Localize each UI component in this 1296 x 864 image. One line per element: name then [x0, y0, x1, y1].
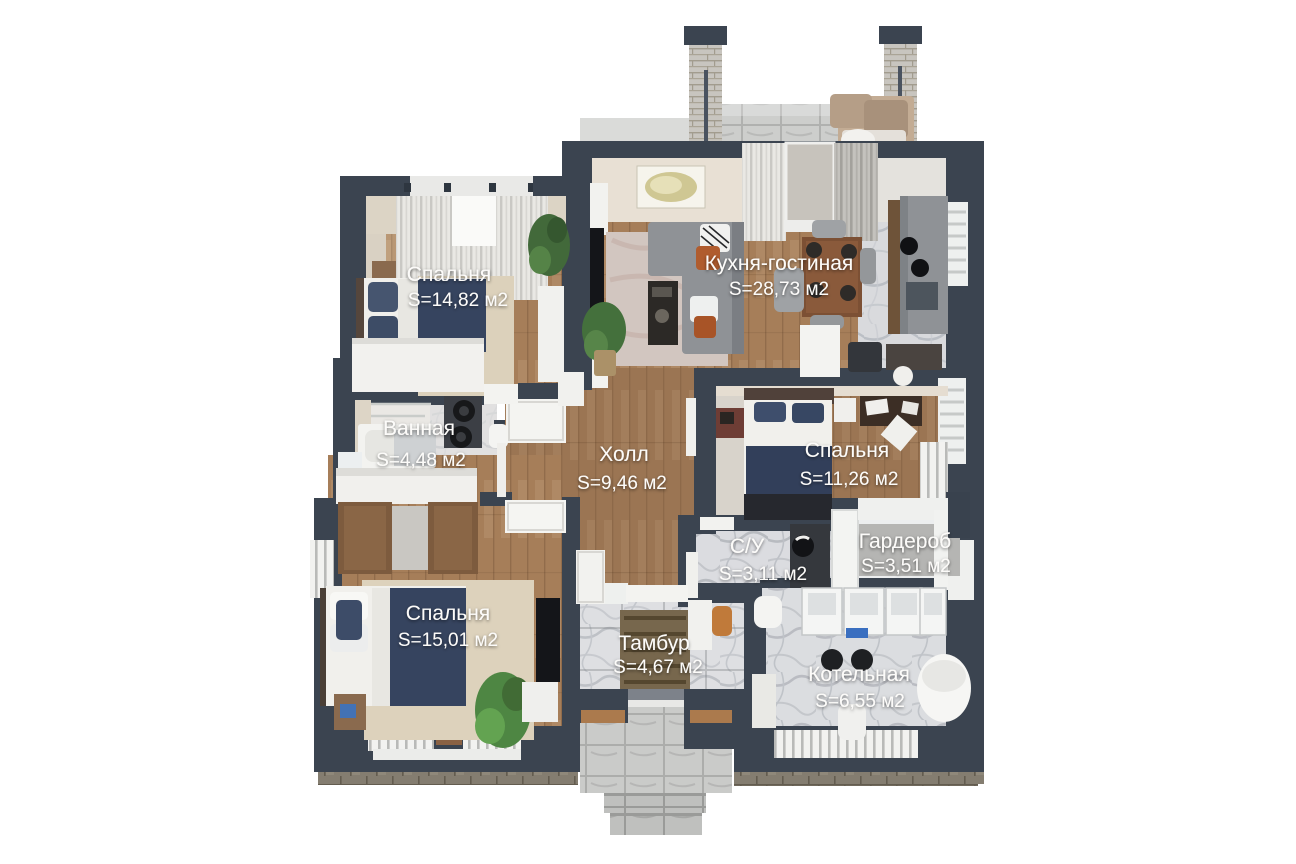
svg-text:Холл: Холл: [599, 443, 649, 466]
svg-text:S=11,26 м2: S=11,26 м2: [800, 469, 899, 490]
svg-text:S=28,73 м2: S=28,73 м2: [729, 279, 829, 300]
svg-text:S=9,46 м2: S=9,46 м2: [577, 473, 667, 494]
svg-text:S=3,11 м2: S=3,11 м2: [719, 564, 807, 585]
svg-text:S=4,67 м2: S=4,67 м2: [613, 657, 703, 678]
svg-text:S=15,01 м2: S=15,01 м2: [398, 630, 498, 651]
svg-text:S=6,55 м2: S=6,55 м2: [815, 691, 905, 712]
svg-text:Гардероб: Гардероб: [859, 530, 951, 553]
svg-text:Котельная: Котельная: [808, 663, 910, 686]
svg-text:Спальня: Спальня: [407, 263, 491, 286]
svg-text:S=4,48 м2: S=4,48 м2: [376, 450, 466, 471]
svg-text:Кухня-гостиная: Кухня-гостиная: [705, 252, 854, 275]
svg-text:Ванная: Ванная: [383, 417, 455, 440]
svg-text:Тамбур: Тамбур: [618, 632, 689, 655]
svg-text:S=3,51 м2: S=3,51 м2: [861, 556, 951, 577]
svg-text:С/У: С/У: [730, 535, 765, 558]
svg-text:Спальня: Спальня: [805, 439, 889, 462]
svg-text:S=14,82 м2: S=14,82 м2: [408, 290, 508, 311]
svg-text:Спальня: Спальня: [406, 602, 490, 625]
